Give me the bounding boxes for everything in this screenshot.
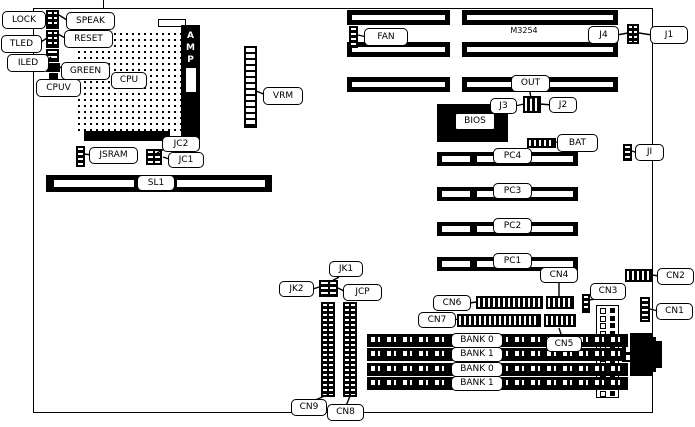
callout-jsram: JSRAM [89,147,138,164]
callout-j2: J2 [549,97,577,113]
callout-cn6: CN6 [433,295,471,311]
callout-jk2: JK2 [279,281,314,297]
callout-pc3: PC3 [493,183,532,199]
callout-ji: JI [635,144,664,161]
callout-cn4: CN4 [540,267,578,283]
callout-speak: SPEAK [66,12,115,30]
callout-pc1: PC1 [493,253,532,269]
callout-lock: LOCK [2,11,46,29]
callout-j4: J4 [588,26,619,44]
callout-green: GREEN [61,62,110,80]
callout-cn7: CN7 [418,312,456,328]
callout-bank1-a: BANK 1 [451,347,503,362]
callout-bank0-b: BANK 0 [451,362,503,377]
callout-iled: ILED [7,54,49,72]
callout-jcp: JCP [343,284,382,301]
callout-out: OUT [511,75,550,92]
callout-cpuv: CPUV [36,79,81,97]
callout-cn2: CN2 [657,268,694,285]
callout-jc1: JC1 [168,152,204,168]
callout-cn5: CN5 [546,336,582,352]
callout-fan: FAN [364,28,408,46]
callout-pc2: PC2 [493,218,532,234]
callout-cn8: CN8 [327,404,364,421]
callout-pc4: PC4 [493,148,532,164]
callout-cn3: CN3 [590,283,626,300]
callout-jk1: JK1 [329,261,363,277]
callout-bat: BAT [557,134,598,152]
callout-j3: J3 [490,98,517,114]
callout-bios: BIOS [455,113,495,130]
callout-cpu: CPU [111,72,147,89]
callout-cn9: CN9 [291,399,327,416]
callout-reset: RESET [64,30,113,48]
motherboard-diagram: LOCK SPEAK TLED RESET ILED GREEN CPUV CP… [0,0,695,427]
callout-vrm: VRM [263,87,303,105]
callout-cn1: CN1 [656,303,693,320]
callout-bank1-b: BANK 1 [451,376,503,391]
callout-sl1: SL1 [137,175,175,191]
callout-j1: J1 [650,26,688,44]
callout-tled: TLED [1,35,42,53]
callout-bank0-a: BANK 0 [451,333,503,348]
callout-jc2: JC2 [162,136,200,152]
